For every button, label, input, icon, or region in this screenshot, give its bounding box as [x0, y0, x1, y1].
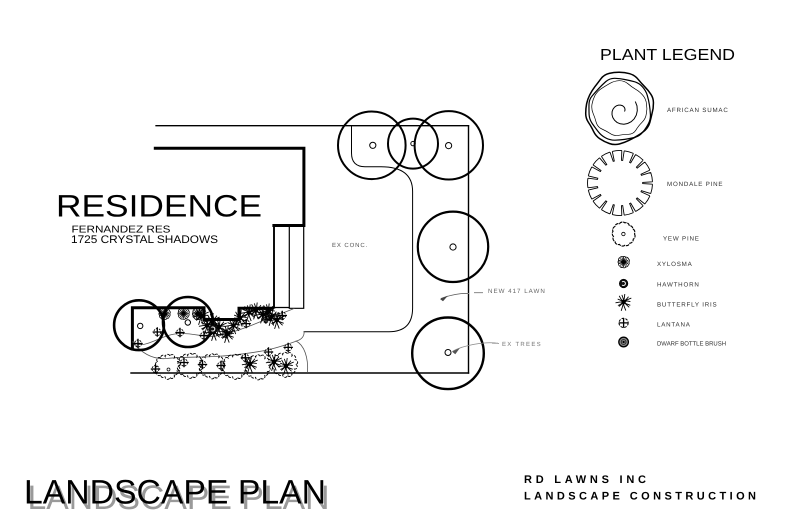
- svg-text:PLANT LEGEND: PLANT LEGEND: [600, 47, 735, 64]
- svg-text:MONDALE PINE: MONDALE PINE: [667, 181, 723, 188]
- svg-text:LANDSCAPE PLAN: LANDSCAPE PLAN: [24, 474, 326, 512]
- svg-text:AFRICAN SUMAC: AFRICAN SUMAC: [667, 107, 729, 114]
- svg-text:XYLOSMA: XYLOSMA: [657, 261, 693, 268]
- svg-text:LANDSCAPE CONSTRUCTION: LANDSCAPE CONSTRUCTION: [524, 491, 756, 503]
- svg-text:NEW 417 LAWN: NEW 417 LAWN: [488, 288, 546, 295]
- svg-text:LANTANA: LANTANA: [657, 322, 691, 329]
- svg-text:EX TREES: EX TREES: [502, 341, 542, 348]
- svg-text:YEW PINE: YEW PINE: [663, 236, 700, 243]
- svg-text:RD LAWNS INC: RD LAWNS INC: [524, 474, 646, 486]
- svg-text:1725 CRYSTAL SHADOWS: 1725 CRYSTAL SHADOWS: [71, 234, 218, 246]
- svg-text:EX CONC.: EX CONC.: [332, 242, 368, 249]
- svg-text:RESIDENCE: RESIDENCE: [56, 189, 262, 224]
- svg-text:HAWTHORN: HAWTHORN: [657, 282, 700, 289]
- svg-text:BUTTERFLY IRIS: BUTTERFLY IRIS: [657, 302, 717, 309]
- svg-text:DWARF BOTTLE BRUSH: DWARF BOTTLE BRUSH: [657, 341, 726, 348]
